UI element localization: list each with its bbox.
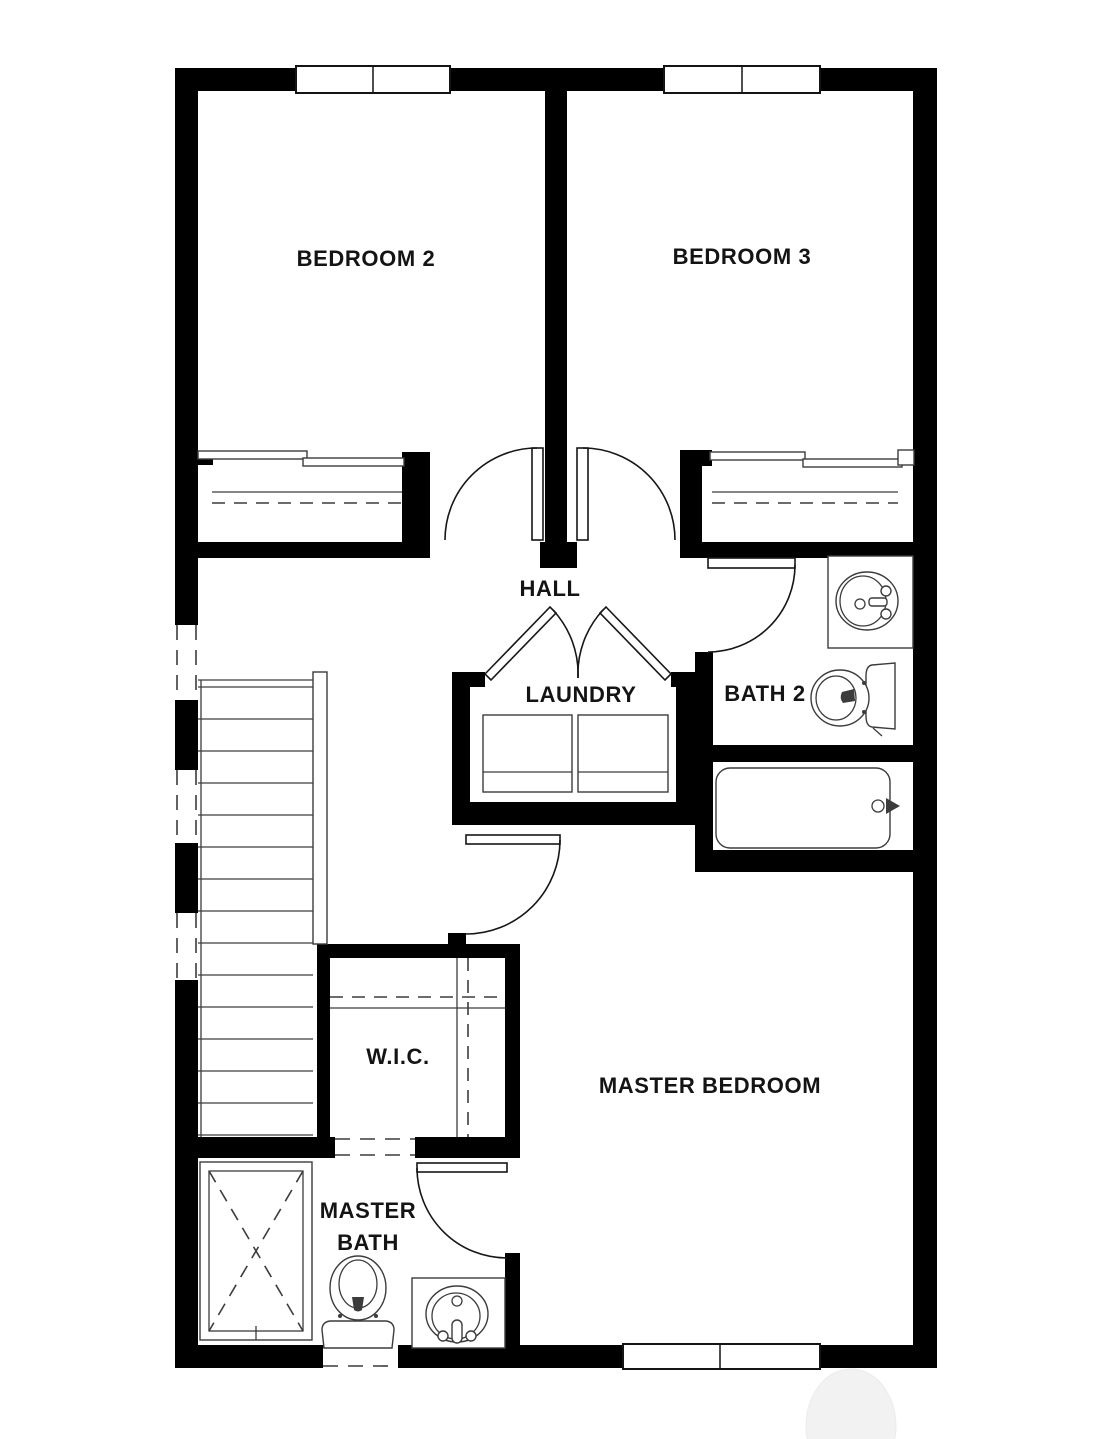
sliding-door-panel — [303, 458, 404, 466]
bifold-swing-arc — [578, 610, 603, 678]
sliding-door-panel — [710, 452, 805, 460]
room-label-laundry: LAUNDRY — [526, 682, 637, 707]
room-label-bedroom2: BEDROOM 2 — [297, 246, 436, 271]
room-label-hall: HALL — [519, 576, 580, 601]
door-panel — [577, 448, 588, 540]
master-bath-door — [417, 1163, 507, 1258]
wall-segment — [505, 944, 520, 1137]
door-swing-arc — [445, 448, 537, 540]
wall-segment — [452, 672, 470, 822]
stair-treads — [198, 687, 313, 1135]
wall-segment — [175, 843, 198, 913]
stairwell-open-rail — [177, 625, 196, 980]
bedroom3-closet — [710, 450, 914, 503]
wall-segment — [175, 700, 198, 770]
wall-segment — [198, 1137, 335, 1158]
wall-segment — [175, 980, 198, 1368]
master-bedroom-window — [623, 1344, 820, 1369]
bottom-wall-dashed-opening — [323, 1347, 398, 1366]
master-bedroom-door — [466, 835, 560, 934]
door-swing-arc — [466, 840, 560, 934]
bifold-panel — [600, 607, 671, 680]
room-label-wic: W.I.C. — [366, 1044, 430, 1069]
wall-segment — [671, 672, 713, 687]
wall-segment — [545, 91, 567, 542]
room-label-bath2: BATH 2 — [724, 681, 805, 706]
photo-watermark — [806, 1369, 896, 1439]
dryer-fixture — [578, 715, 668, 792]
bifold-swing-arc — [553, 610, 578, 678]
room-label-master-bath-line1: MASTER — [320, 1198, 417, 1223]
wall-segment — [175, 1345, 323, 1368]
toilet-tank — [866, 663, 895, 729]
wall-segment — [175, 68, 198, 625]
wall-segment — [505, 1253, 520, 1345]
wall-segment — [452, 672, 485, 687]
wall-segment — [680, 450, 712, 466]
staircase — [198, 672, 327, 1137]
wall-segment — [317, 944, 520, 958]
room-label-bedroom3: BEDROOM 3 — [673, 244, 812, 269]
wall-segment — [695, 850, 914, 872]
wall-segment — [198, 542, 430, 558]
faucet-knob — [881, 609, 891, 619]
sink-basin — [836, 572, 898, 630]
sliding-door-panel — [198, 451, 307, 459]
bedroom3-door — [577, 448, 675, 540]
faucet-handle — [869, 598, 887, 606]
wall-segment — [415, 1137, 520, 1158]
wall-segment — [676, 672, 695, 822]
faucet-handle — [452, 1320, 462, 1343]
laundry-bifold-doors — [485, 607, 671, 680]
tub-faucet — [886, 798, 900, 814]
wic-bath-dashed-opening — [335, 1139, 415, 1155]
bedroom2-door — [445, 448, 543, 540]
washer-fixture — [483, 715, 572, 792]
room-label-master-bath-line2: BATH — [337, 1230, 399, 1255]
window-frame — [623, 1344, 820, 1369]
door-panel — [466, 835, 560, 844]
faucet-knob — [438, 1331, 448, 1341]
bath2-bathtub-fixture — [716, 768, 900, 848]
bedroom2-closet — [198, 451, 404, 503]
master-sink-fixture — [412, 1278, 505, 1348]
master-toilet-fixture — [322, 1256, 394, 1348]
wall-segment — [448, 933, 466, 946]
tub-outline — [716, 768, 890, 848]
wall-segment — [695, 745, 914, 762]
door-swing-arc — [708, 565, 795, 652]
faucet-knob — [466, 1331, 476, 1341]
toilet-bowl — [811, 670, 869, 726]
door-panel — [532, 448, 543, 540]
bath2-door — [708, 558, 795, 652]
floor-plan: BEDROOM 2 BEDROOM 3 HALL LAUNDRY BATH 2 … — [0, 0, 1112, 1439]
door-swing-arc — [583, 448, 675, 540]
room-label-master-bedroom: MASTER BEDROOM — [599, 1073, 821, 1098]
door-swing-arc — [417, 1168, 507, 1258]
master-shower-fixture — [200, 1162, 312, 1340]
door-panel — [417, 1163, 507, 1172]
bedroom3-window — [664, 66, 820, 93]
door-panel — [708, 558, 795, 568]
wall-segment — [540, 542, 577, 568]
bath2-toilet-fixture — [811, 663, 895, 736]
sliding-door-panel — [803, 459, 902, 467]
stair-handrail — [313, 672, 327, 944]
wall-segment — [913, 68, 937, 1368]
bifold-panel — [485, 607, 556, 680]
closet-jamb — [898, 450, 914, 465]
toilet-tank — [322, 1321, 394, 1348]
wall-segment — [450, 68, 664, 91]
faucet-knob — [881, 586, 891, 596]
wall-segment — [317, 958, 330, 1137]
wall-segment — [820, 1345, 937, 1368]
wall-segment — [680, 450, 702, 558]
floor-plan-canvas: BEDROOM 2 BEDROOM 3 HALL LAUNDRY BATH 2 … — [0, 0, 1112, 1439]
bath2-sink-fixture — [828, 556, 913, 648]
bedroom2-window — [296, 66, 450, 93]
wall-segment — [452, 802, 713, 825]
